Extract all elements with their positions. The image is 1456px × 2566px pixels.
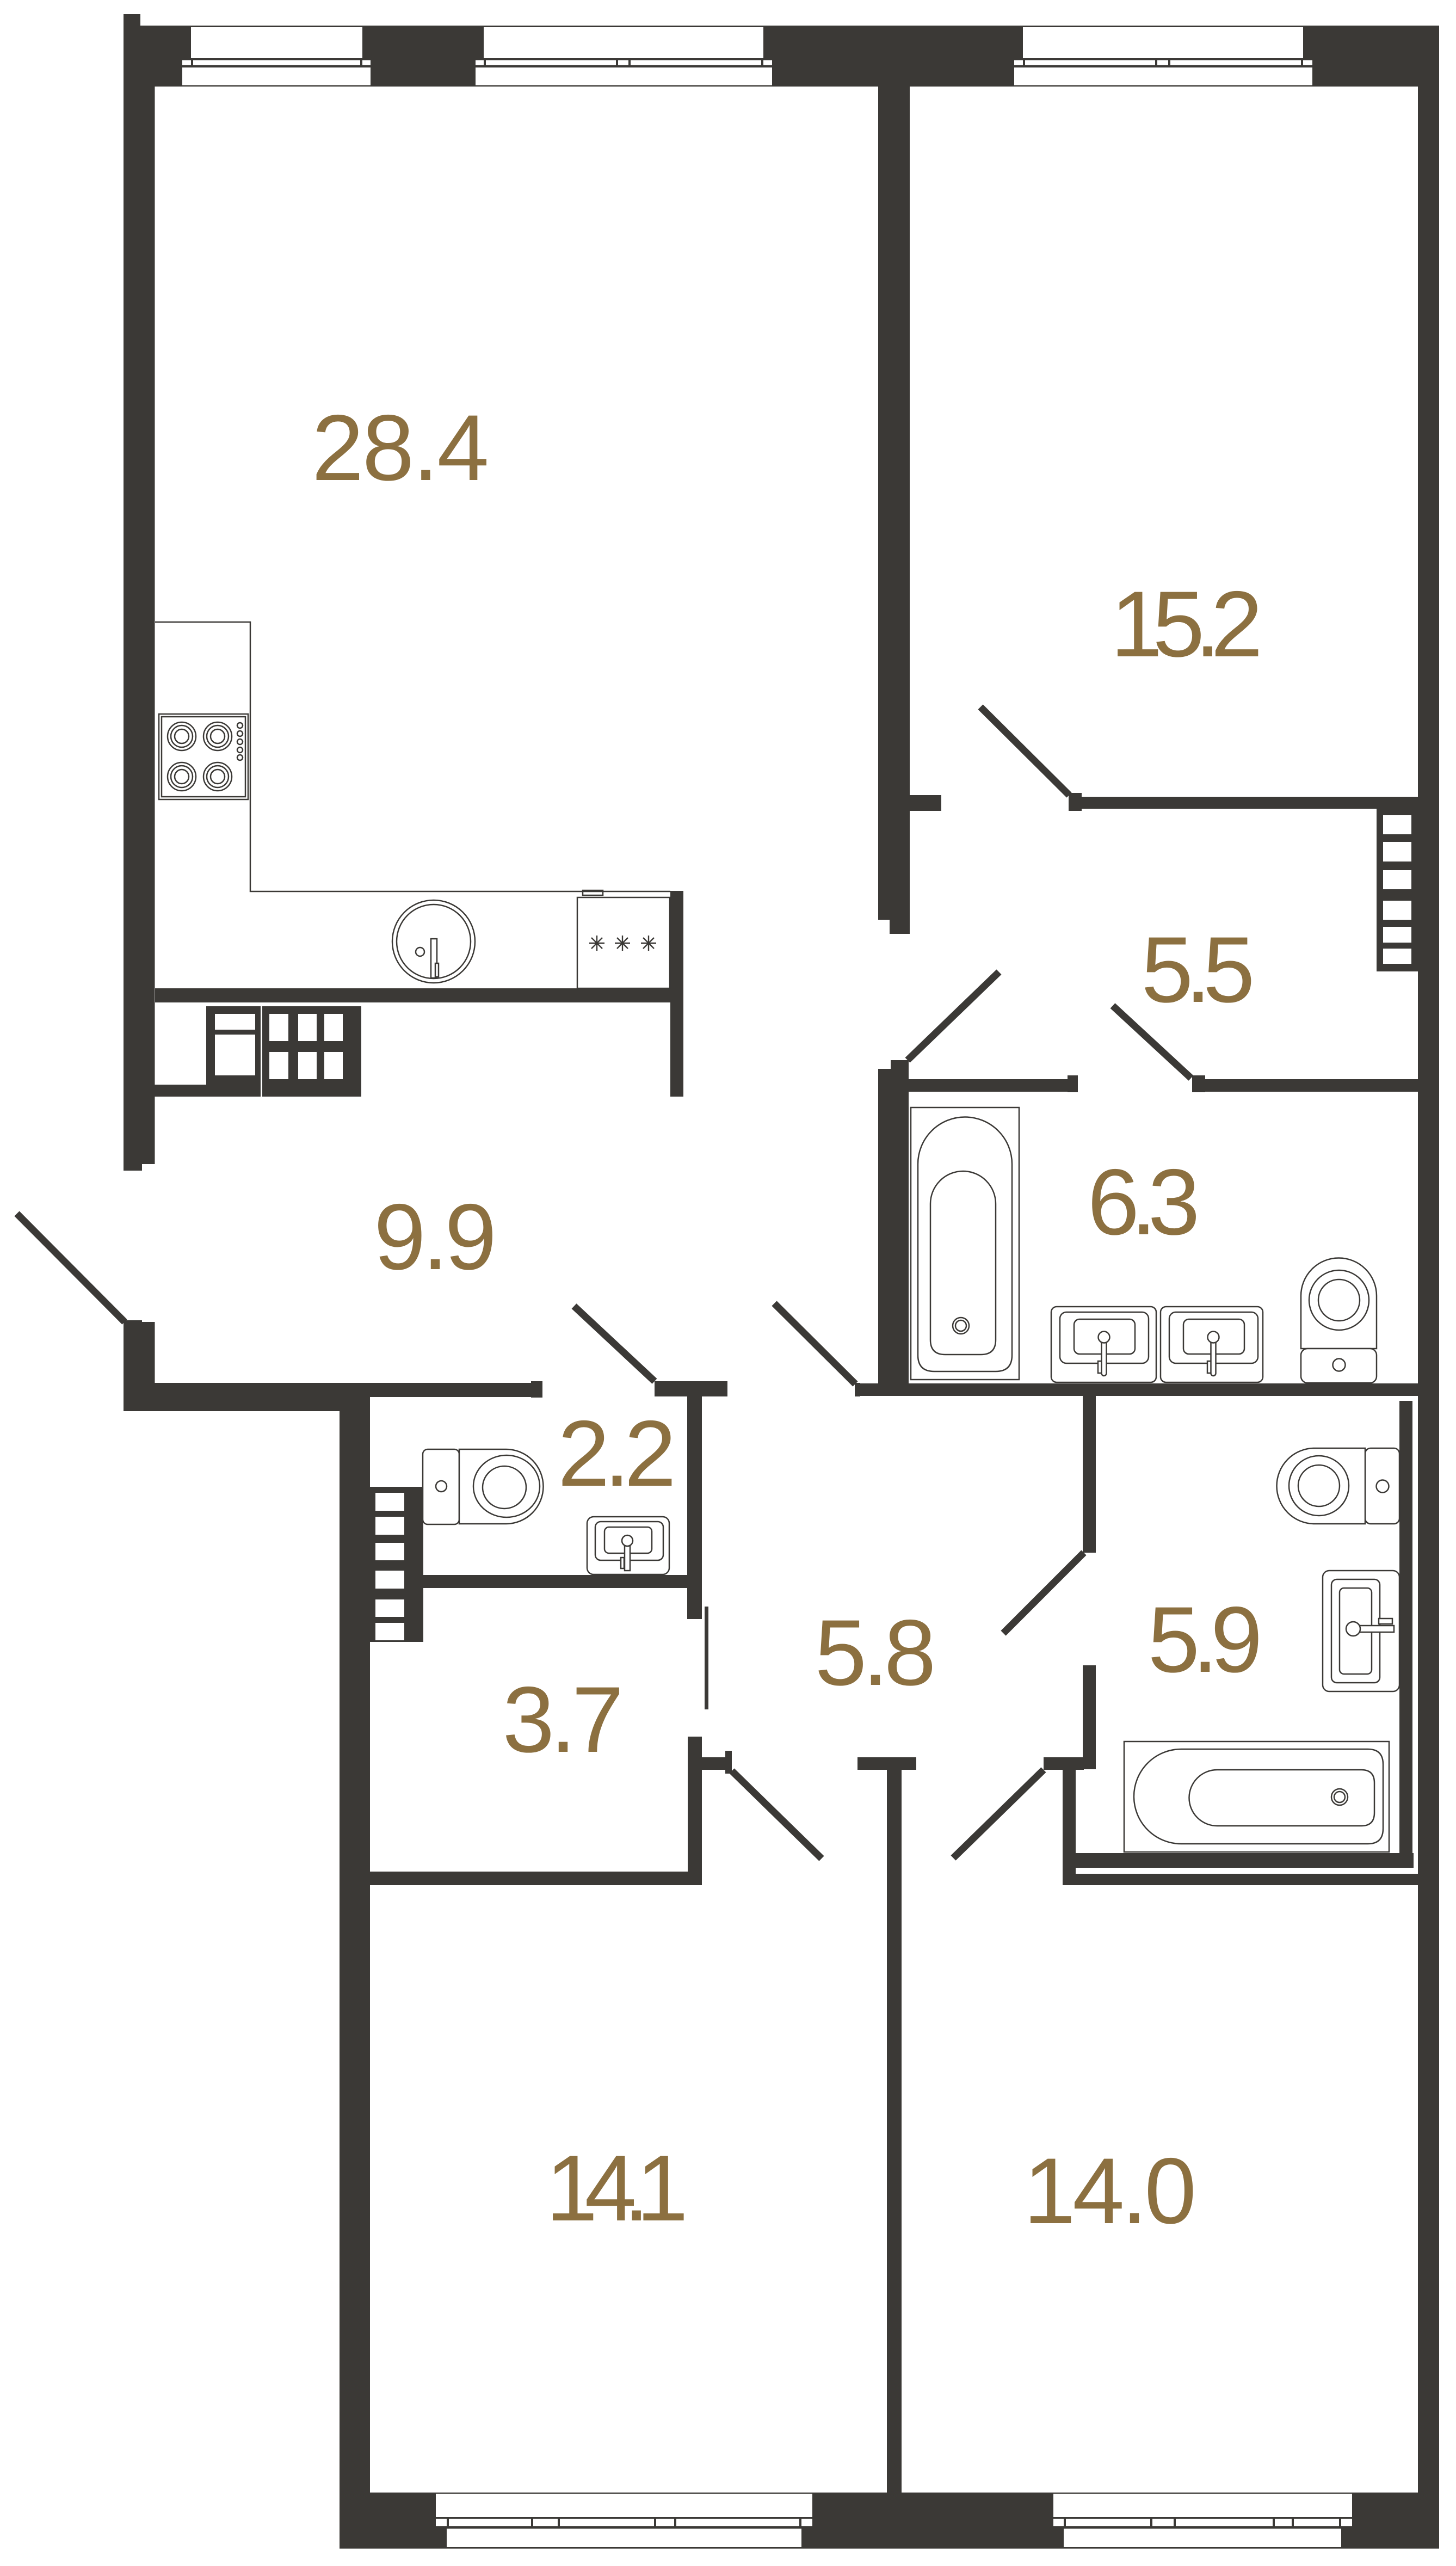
- svg-text:14.1: 14.1: [546, 2136, 688, 2241]
- svg-text:14.0: 14.0: [1023, 2139, 1196, 2243]
- svg-text:5.5: 5.5: [1142, 918, 1255, 1022]
- svg-text:6.3: 6.3: [1088, 1150, 1200, 1254]
- svg-text:15.2: 15.2: [1110, 572, 1263, 676]
- svg-text:28.4: 28.4: [312, 396, 489, 500]
- svg-text:2.2: 2.2: [558, 1401, 676, 1506]
- svg-text:5.9: 5.9: [1148, 1587, 1263, 1692]
- svg-text:5.8: 5.8: [815, 1601, 936, 1705]
- svg-text:9.9: 9.9: [374, 1185, 497, 1289]
- svg-text:3.7: 3.7: [503, 1667, 624, 1772]
